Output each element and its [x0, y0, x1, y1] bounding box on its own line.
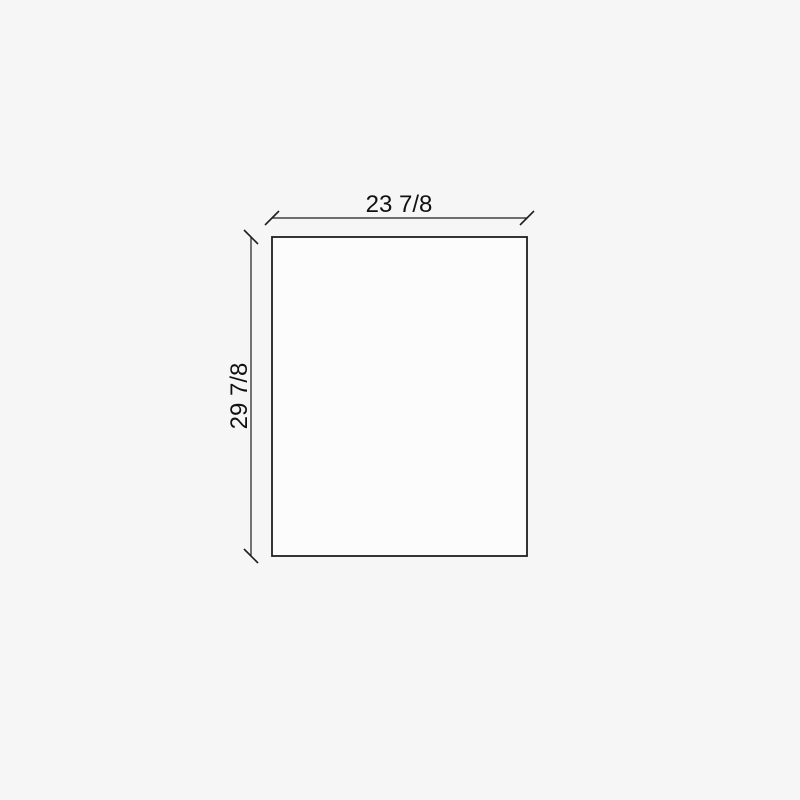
- width-dimension-label: 23 7/8: [366, 191, 433, 218]
- diagram-svg: 23 7/8 29 7/8: [0, 0, 800, 800]
- panel-outline-rectangle: [272, 237, 527, 556]
- height-dimension-label: 29 7/8: [226, 363, 253, 430]
- dimension-diagram: 23 7/8 29 7/8: [0, 0, 800, 800]
